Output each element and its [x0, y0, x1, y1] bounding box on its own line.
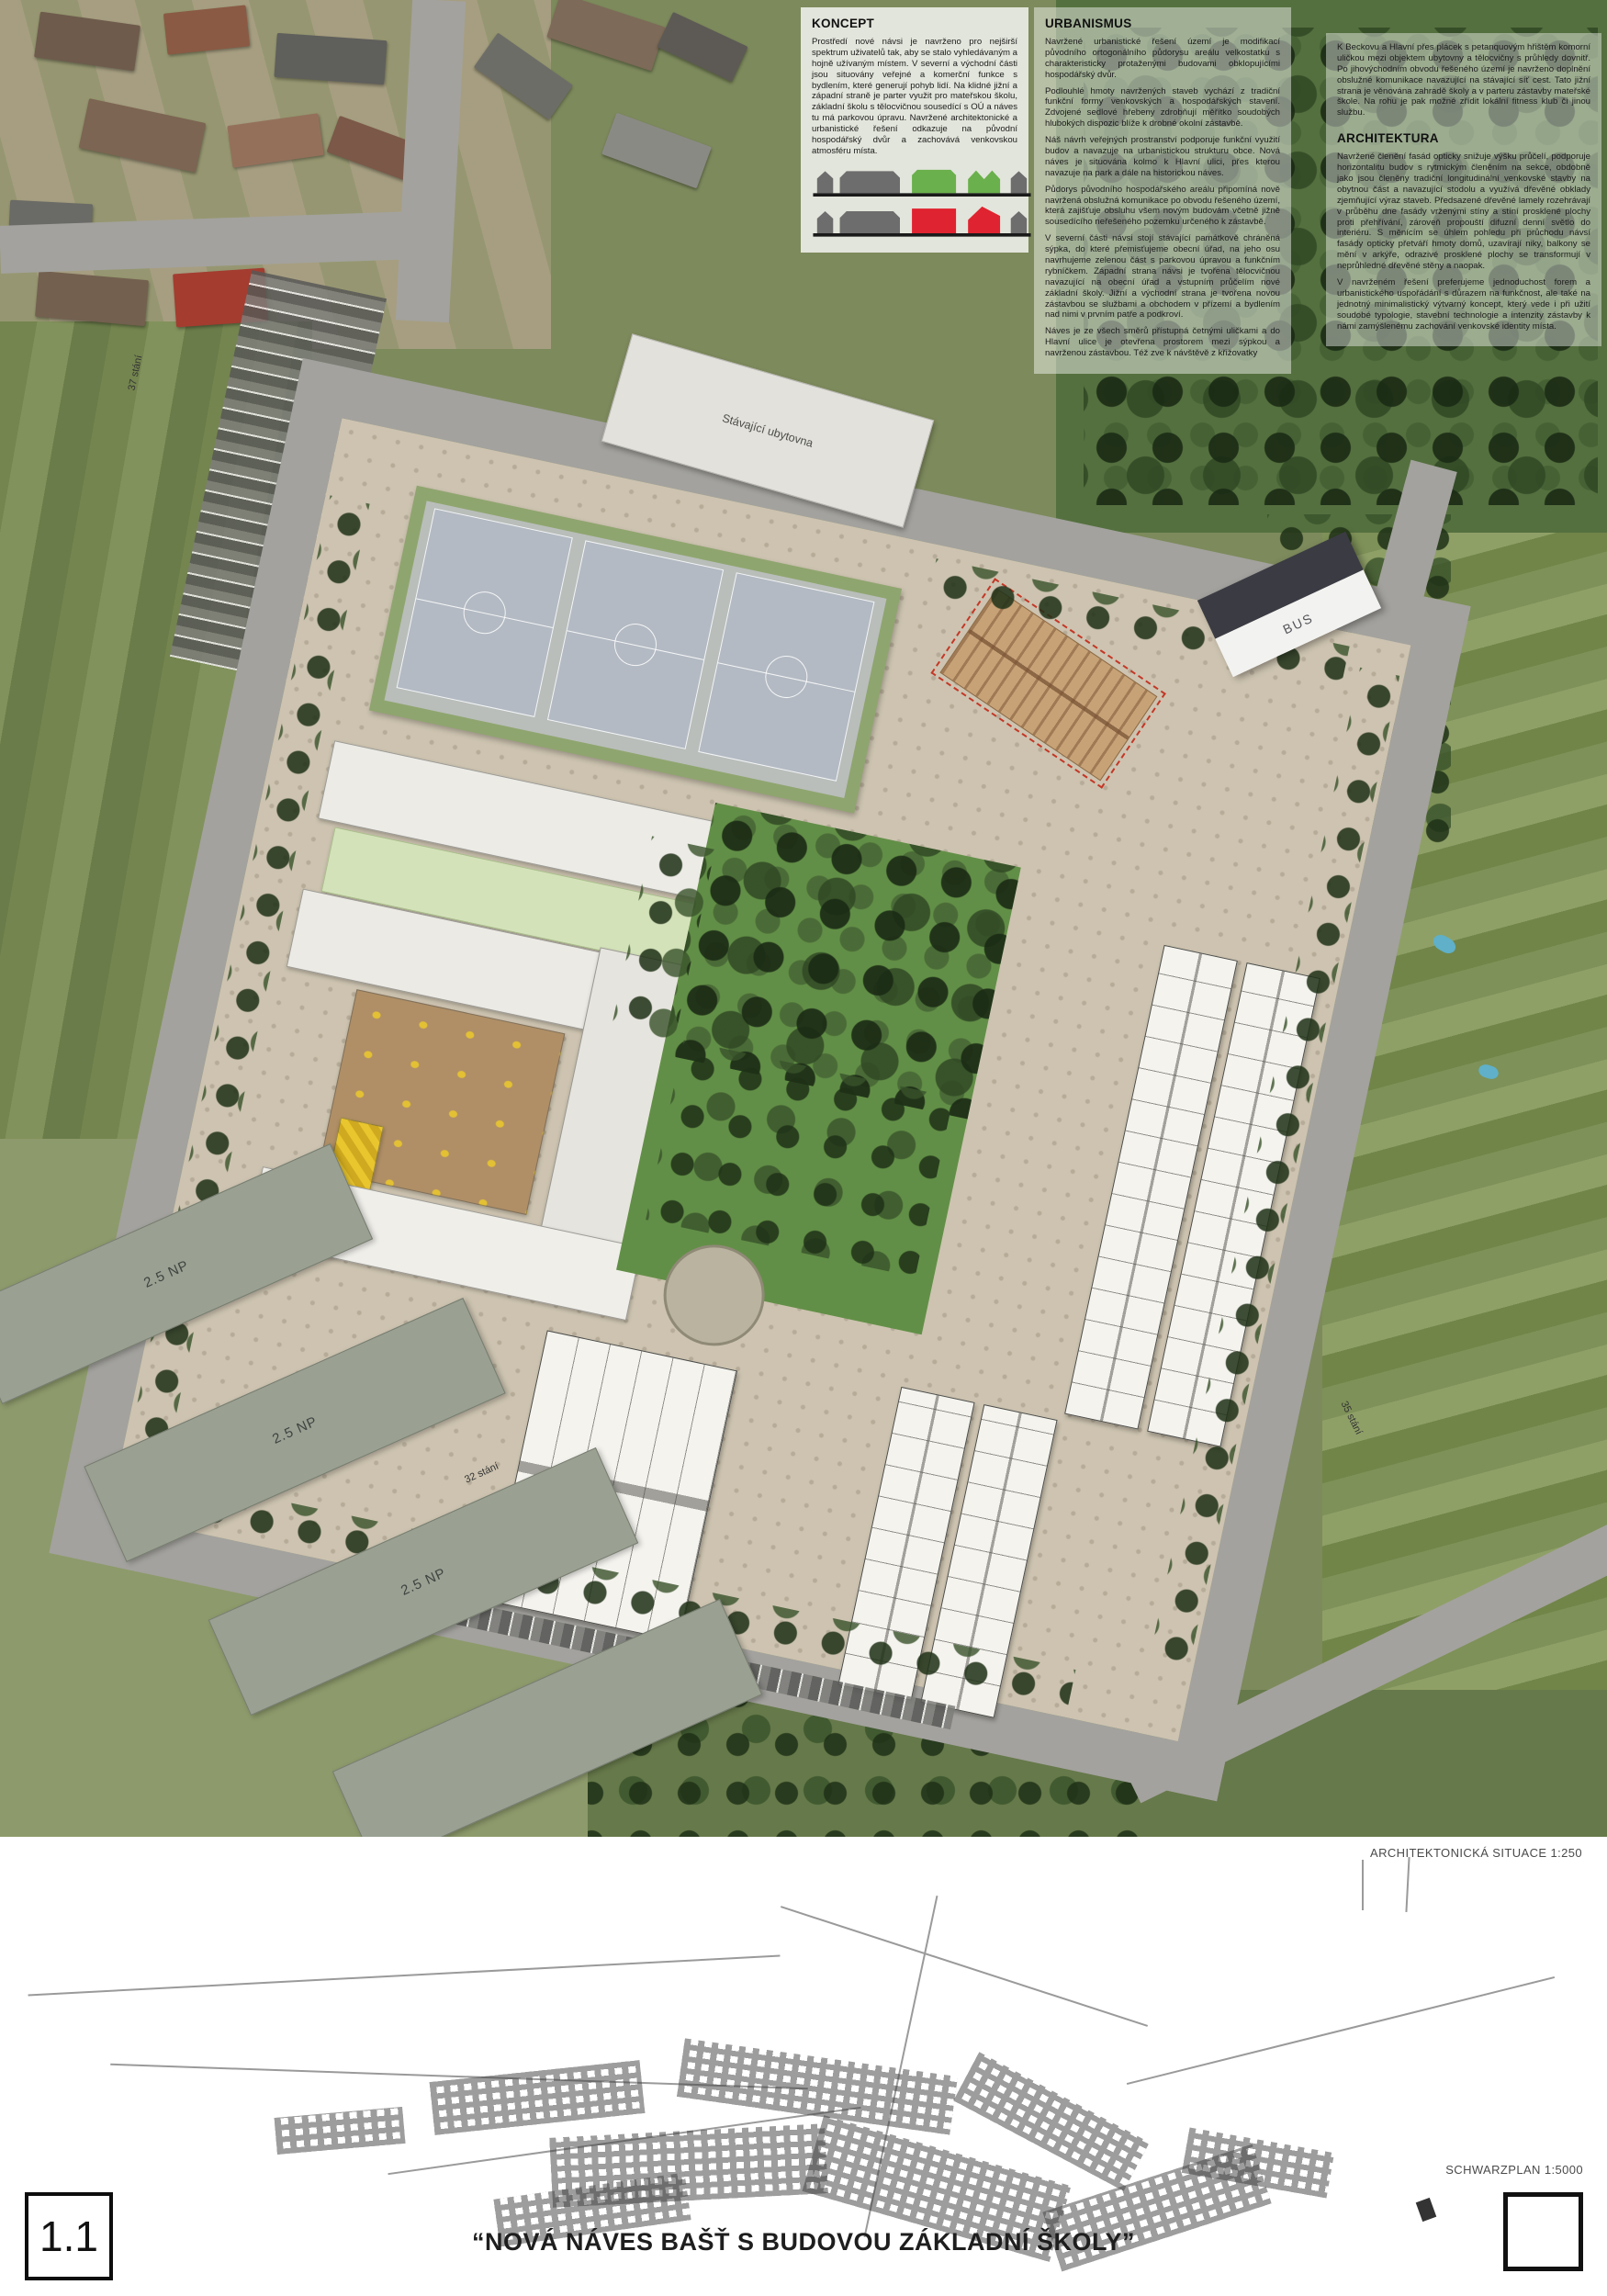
house-roof [274, 33, 387, 84]
map-building-cluster [677, 2038, 958, 2134]
architektura-paragraph: Navržené členění fasád opticky snižuje v… [1337, 152, 1590, 272]
map-building-cluster [430, 2060, 646, 2135]
basketball-court [547, 540, 724, 749]
house-roof [546, 0, 666, 71]
floors-label: 2.5 NP [270, 1413, 320, 1447]
presentation-board: Stávající ubytovna BUS 2.5 NP 2.5 NP 2.5… [0, 0, 1607, 2296]
house-roof [657, 12, 747, 82]
house-roof [601, 113, 712, 189]
concept-massing-diagram [812, 166, 1032, 242]
architektura-paragraph: V navrženém řešení preferujeme jednoduch… [1337, 277, 1590, 332]
architektura-panel: K Beckovu a Hlavní přes plácek s petanqu… [1326, 33, 1601, 346]
urbanismus-panel: URBANISMUS Navržené urbanistické řešení … [1034, 7, 1291, 374]
architektura-intro-paragraph: K Beckovu a Hlavní přes plácek s petanqu… [1337, 42, 1590, 118]
map-road [28, 1955, 781, 1997]
basketball-court [698, 572, 874, 782]
schwarzplan-section: ARCHITEKTONICKÁ SITUACE 1:250 SCHWARZPLA… [0, 1837, 1607, 2296]
floors-label: 2.5 NP [141, 1257, 191, 1291]
map-road [781, 1906, 1148, 2027]
map-road [1362, 1860, 1364, 1910]
koncept-panel: KONCEPT Prostředí nové návsi je navrženo… [801, 7, 1028, 253]
house-roof [35, 271, 149, 326]
urbanismus-paragraph: Náš návrh veřejných prostranství podporu… [1045, 135, 1280, 179]
koncept-paragraph: Prostředí nové návsi je navrženo pro nej… [812, 37, 1017, 157]
board-title: “NOVÁ NÁVES BAŠŤ S BUDOVOU ZÁKLADNÍ ŠKOL… [0, 2228, 1607, 2257]
floors-label: 2.5 NP [399, 1565, 448, 1599]
urbanismus-paragraph: Půdorys původního hospodářského areálu p… [1045, 185, 1280, 229]
urbanismus-paragraph: Podlouhlé hmoty navržených staveb vycház… [1045, 86, 1280, 130]
map-school-site-marker [1416, 2198, 1437, 2222]
existing-hostel-label: Stávající ubytovna [721, 411, 815, 450]
urbanismus-paragraph: Náves je ze všech směrů přístupná četným… [1045, 326, 1280, 359]
map-road [1127, 1976, 1555, 2085]
map-building-cluster [275, 2107, 406, 2155]
aerial-masterplan: Stávající ubytovna BUS 2.5 NP 2.5 NP 2.5… [0, 0, 1607, 1837]
urbanismus-heading: URBANISMUS [1045, 17, 1280, 30]
urbanismus-paragraph: Navržené urbanistické řešení území je mo… [1045, 37, 1280, 81]
urbanismus-paragraph: V severní části návsi stojí stávající pa… [1045, 233, 1280, 321]
architektura-heading: ARCHITEKTURA [1337, 131, 1590, 145]
basketball-court [397, 508, 573, 717]
house-roof [163, 5, 250, 54]
map-road [1405, 1857, 1410, 1912]
schwarzplan-scale-label: SCHWARZPLAN 1:5000 [1445, 2163, 1583, 2177]
situation-scale-label: ARCHITEKTONICKÁ SITUACE 1:250 [1370, 1846, 1582, 1860]
koncept-heading: KONCEPT [812, 17, 1017, 30]
